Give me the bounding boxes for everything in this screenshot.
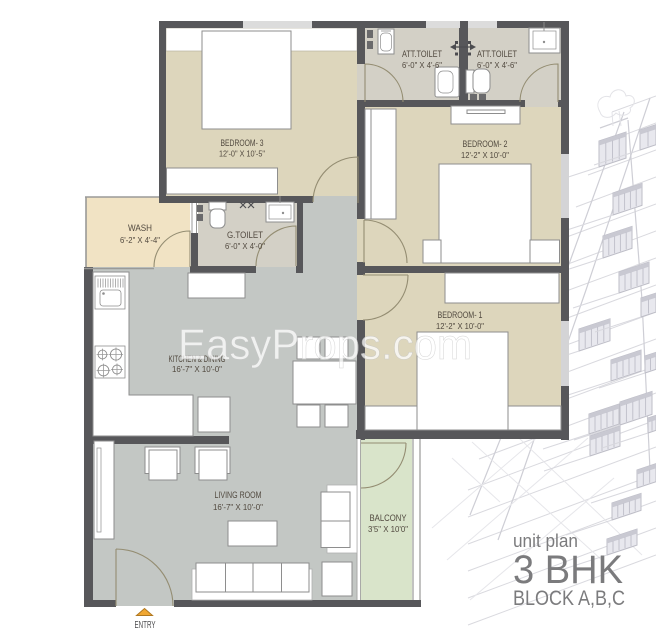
svg-text:BEDROOM- 3: BEDROOM- 3 xyxy=(221,138,264,149)
svg-text:BEDROOM- 1: BEDROOM- 1 xyxy=(438,310,483,321)
svg-text:G.TOILET: G.TOILET xyxy=(227,230,263,241)
svg-text:16'-7" X 10'-0": 16'-7" X 10'-0" xyxy=(213,502,263,512)
svg-text:BLOCK A,B,C: BLOCK A,B,C xyxy=(513,587,625,610)
svg-text:12'-2" X 10'-0": 12'-2" X 10'-0" xyxy=(461,150,509,160)
svg-text:BALCONY: BALCONY xyxy=(370,513,407,523)
svg-text:WASH: WASH xyxy=(128,223,152,234)
svg-text:BEDROOM- 2: BEDROOM- 2 xyxy=(463,139,508,150)
svg-text:ATT.TOILET: ATT.TOILET xyxy=(477,49,517,60)
svg-text:ENTRY: ENTRY xyxy=(135,620,156,631)
svg-text:6'-2" X 4'-4": 6'-2" X 4'-4" xyxy=(120,235,160,245)
svg-text:ATT.TOILET: ATT.TOILET xyxy=(402,49,442,60)
svg-text:6'-0" X 4'-6": 6'-0" X 4'-6" xyxy=(402,60,442,70)
svg-text:LIVING ROOM: LIVING ROOM xyxy=(215,490,262,501)
svg-text:EasyProps.com: EasyProps.com xyxy=(178,321,472,369)
svg-text:12'-0" X 10'-5": 12'-0" X 10'-5" xyxy=(219,149,265,159)
svg-text:3 BHK: 3 BHK xyxy=(513,548,623,592)
svg-text:3'5" X 10'0": 3'5" X 10'0" xyxy=(368,525,408,534)
svg-text:6'-0" X 4'-0": 6'-0" X 4'-0" xyxy=(225,241,265,251)
svg-text:6'-0" X 4'-6": 6'-0" X 4'-6" xyxy=(477,60,517,70)
